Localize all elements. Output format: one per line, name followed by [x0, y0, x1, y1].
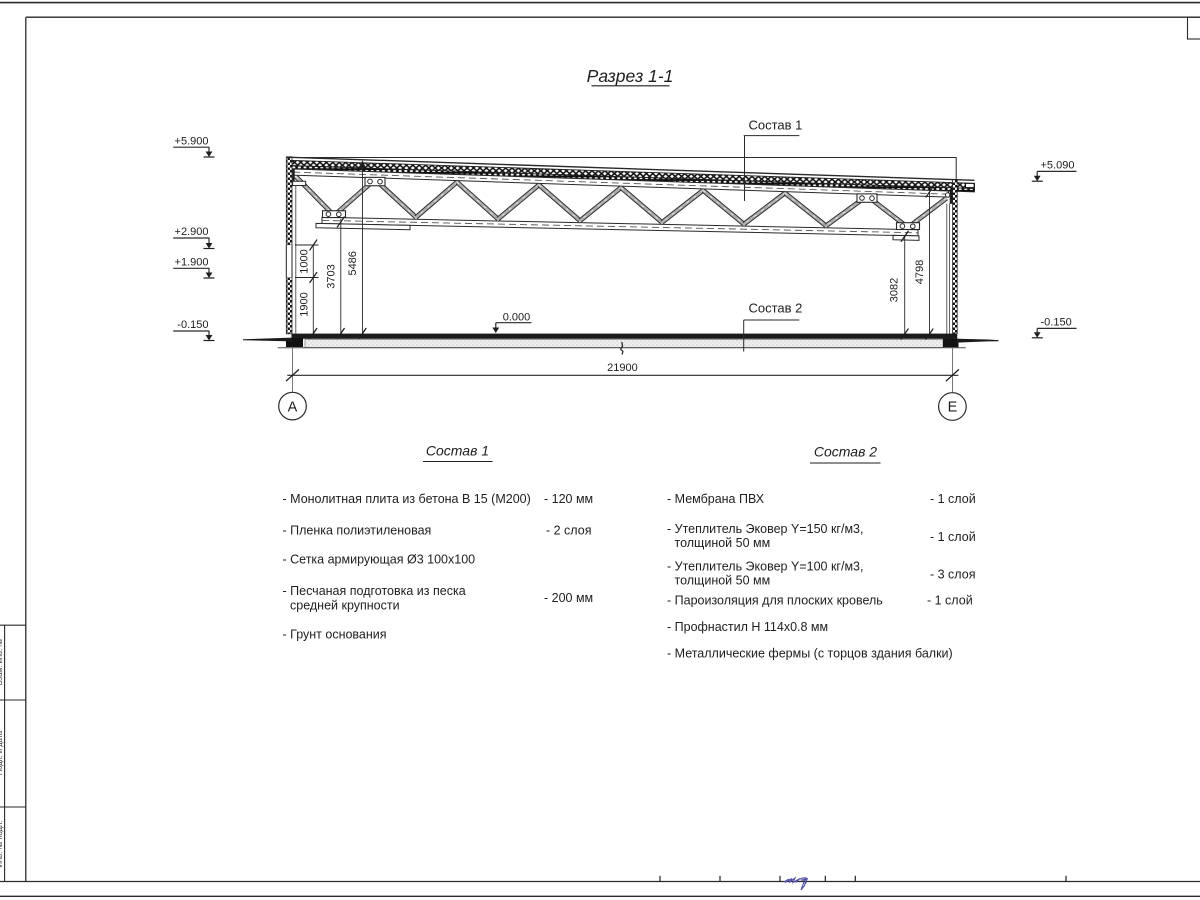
svg-text:- 1 слой: - 1 слой [930, 492, 976, 506]
svg-text:- Металлические фермы (с торцо: - Металлические фермы (с торцов здания б… [667, 646, 953, 660]
svg-text:+1.900: +1.900 [175, 257, 209, 269]
svg-text:- 3 слоя: - 3 слоя [930, 567, 975, 581]
svg-text:- Песчаная подготовка из песка: - Песчаная подготовка из песка [283, 584, 466, 598]
svg-text:- Пленка полиэтиленовая: - Пленка полиэтиленовая [283, 523, 432, 537]
svg-text:+5.900: +5.900 [175, 135, 209, 147]
svg-text:Инв. № подл.: Инв. № подл. [0, 821, 4, 868]
svg-text:Разрез 1-1: Разрез 1-1 [587, 66, 674, 86]
svg-text:- Утеплитель Эковер Y=100 кг/м: - Утеплитель Эковер Y=100 кг/м3, [667, 559, 863, 573]
svg-text:-0.150: -0.150 [1041, 317, 1072, 329]
svg-text:- 2 слоя: - 2 слоя [546, 523, 591, 537]
svg-text:- Сетка армирующая Ø3 100х100: - Сетка армирующая Ø3 100х100 [283, 552, 476, 566]
svg-text:3703: 3703 [325, 264, 337, 288]
svg-text:Состав 2: Состав 2 [749, 301, 803, 316]
svg-text:Состав 1: Состав 1 [426, 443, 489, 459]
svg-text:- 120 мм: - 120 мм [544, 492, 593, 506]
svg-text:Взам. инв. №: Взам. инв. № [0, 639, 4, 685]
svg-text:1900: 1900 [299, 292, 311, 316]
svg-text:А: А [288, 399, 298, 415]
svg-text:0.000: 0.000 [503, 312, 531, 324]
svg-text:средней крупности: средней крупности [290, 598, 400, 612]
svg-text:толщиной 50 мм: толщиной 50 мм [675, 573, 771, 587]
svg-text:- 1 слой: - 1 слой [930, 530, 976, 544]
svg-text:толщиной 50 мм: толщиной 50 мм [675, 536, 771, 550]
svg-text:- Грунт основания: - Грунт основания [283, 627, 387, 641]
svg-text:- 1 слой: - 1 слой [927, 593, 973, 607]
svg-text:- Монолитная плита из бетона В: - Монолитная плита из бетона В 15 (М200) [283, 492, 531, 506]
svg-text:- 200 мм: - 200 мм [544, 591, 593, 605]
svg-text:21900: 21900 [607, 362, 638, 374]
svg-text:4798: 4798 [914, 260, 926, 284]
svg-text:- Пароизоляция для плоских кро: - Пароизоляция для плоских кровель [667, 593, 883, 607]
svg-text:Е: Е [948, 400, 958, 416]
svg-text:3082: 3082 [889, 278, 901, 302]
svg-text:- Мембрана ПВХ: - Мембрана ПВХ [667, 492, 765, 506]
svg-text:- Профнастил Н 114х0.8 мм: - Профнастил Н 114х0.8 мм [667, 620, 828, 634]
svg-text:- Утеплитель Эковер Y=150 кг/м: - Утеплитель Эковер Y=150 кг/м3, [667, 522, 863, 536]
svg-text:5486: 5486 [347, 251, 359, 275]
svg-text:+2.900: +2.900 [175, 226, 209, 238]
svg-text:1000: 1000 [299, 249, 311, 273]
svg-text:Состав 2: Состав 2 [814, 444, 877, 460]
svg-text:+5.090: +5.090 [1041, 160, 1075, 172]
svg-text:Подп. и дата: Подп. и дата [0, 730, 4, 775]
svg-text:-0.150: -0.150 [177, 319, 208, 331]
svg-text:Состав 1: Состав 1 [749, 118, 803, 133]
